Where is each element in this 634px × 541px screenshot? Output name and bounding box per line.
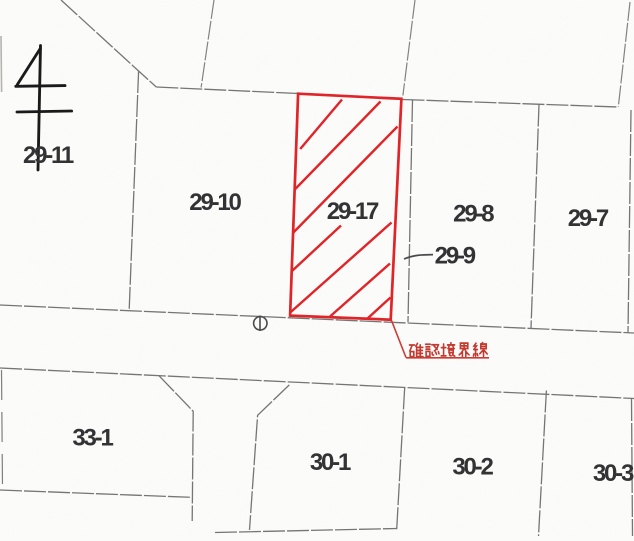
svg-text:29-7: 29-7 (568, 205, 609, 232)
svg-text:29-11: 29-11 (23, 142, 74, 169)
svg-text:29-8: 29-8 (453, 201, 494, 228)
svg-text:30-3: 30-3 (593, 460, 634, 487)
svg-text:30-2: 30-2 (452, 454, 493, 481)
svg-text:30-1: 30-1 (310, 449, 351, 476)
svg-text:29-10: 29-10 (189, 189, 241, 216)
svg-text:33-1: 33-1 (72, 425, 113, 452)
svg-text:29-17: 29-17 (327, 198, 379, 225)
svg-text:29-9: 29-9 (435, 243, 476, 270)
